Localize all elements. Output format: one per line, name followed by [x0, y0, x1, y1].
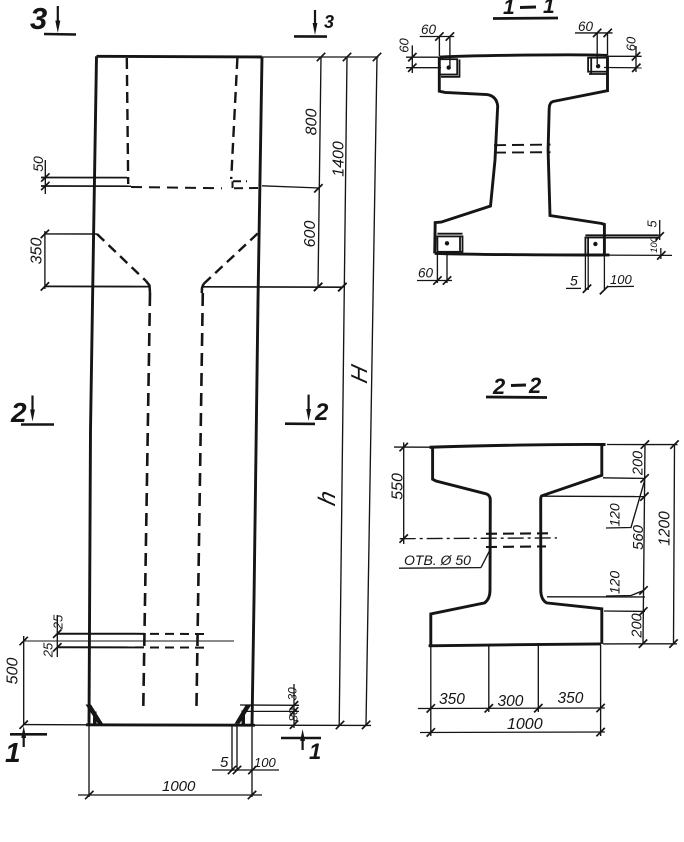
svg-text:200: 200 — [630, 613, 646, 638]
svg-text:25: 25 — [41, 642, 56, 658]
svg-text:560: 560 — [630, 524, 647, 550]
svg-text:600: 600 — [302, 221, 319, 248]
svg-text:200: 200 — [631, 451, 647, 476]
svg-text:350: 350 — [439, 691, 465, 708]
svg-text:800: 800 — [304, 109, 321, 136]
svg-text:2: 2 — [314, 399, 329, 426]
svg-text:120: 120 — [607, 503, 623, 527]
svg-text:1400: 1400 — [331, 141, 348, 177]
svg-text:60: 60 — [418, 266, 434, 281]
svg-text:80: 80 — [287, 708, 301, 722]
svg-text:60: 60 — [421, 22, 437, 37]
svg-text:5: 5 — [220, 754, 229, 771]
svg-text:1: 1 — [503, 0, 515, 19]
svg-text:350: 350 — [558, 690, 584, 707]
svg-text:1: 1 — [543, 0, 555, 18]
svg-text:5: 5 — [570, 273, 578, 289]
svg-text:3: 3 — [30, 1, 47, 36]
svg-text:50: 50 — [30, 156, 46, 172]
svg-text:100: 100 — [254, 755, 276, 770]
svg-text:1200: 1200 — [657, 511, 674, 546]
svg-text:100: 100 — [610, 272, 632, 287]
svg-text:1000: 1000 — [507, 716, 543, 733]
svg-text:2: 2 — [528, 373, 542, 398]
svg-text:30: 30 — [286, 687, 300, 701]
svg-text:ОТВ. Ø 50: ОТВ. Ø 50 — [404, 552, 471, 568]
svg-text:300: 300 — [498, 693, 524, 710]
svg-text:500: 500 — [5, 658, 22, 685]
svg-text:60: 60 — [624, 36, 639, 51]
svg-text:25: 25 — [51, 614, 66, 630]
svg-text:350: 350 — [29, 238, 46, 265]
svg-text:H: H — [346, 362, 372, 385]
svg-text:3: 3 — [324, 12, 334, 32]
svg-text:h: h — [314, 488, 341, 508]
svg-text:2: 2 — [492, 374, 506, 399]
svg-text:550: 550 — [390, 473, 407, 500]
svg-text:100: 100 — [649, 236, 660, 253]
svg-text:120: 120 — [607, 571, 623, 595]
svg-text:5: 5 — [645, 220, 660, 228]
svg-text:60: 60 — [397, 38, 412, 53]
svg-text:1: 1 — [309, 739, 321, 764]
svg-text:1: 1 — [5, 737, 21, 768]
svg-text:60: 60 — [578, 19, 594, 34]
svg-text:1000: 1000 — [162, 778, 196, 795]
